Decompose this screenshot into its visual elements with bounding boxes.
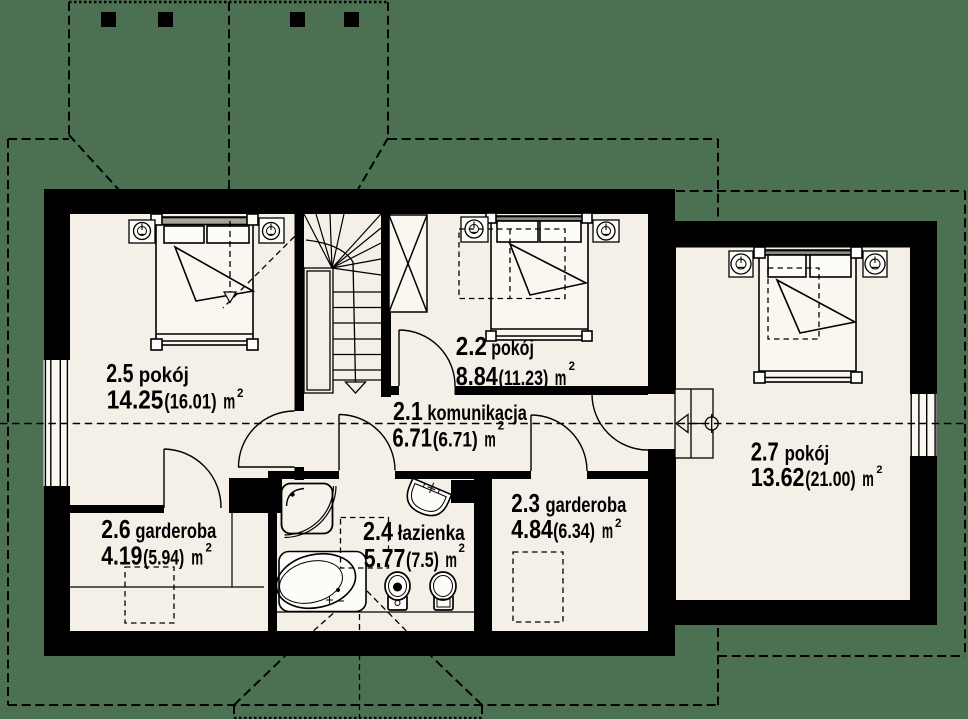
svg-text:pokój: pokój: [491, 337, 534, 360]
svg-text:6.71: 6.71: [392, 423, 432, 453]
svg-text:(21.00): (21.00): [805, 468, 855, 491]
svg-text:2.4: 2.4: [363, 516, 393, 546]
svg-text:m: m: [445, 549, 457, 572]
svg-text:m: m: [223, 391, 235, 414]
svg-text:2.5: 2.5: [106, 358, 133, 388]
svg-text:m: m: [191, 547, 203, 570]
svg-text:garderoba: garderoba: [135, 520, 216, 543]
svg-text:(11.23): (11.23): [499, 367, 549, 390]
svg-text:(16.01): (16.01): [164, 391, 216, 414]
svg-text:4.84: 4.84: [511, 514, 553, 544]
svg-text:5.77: 5.77: [364, 543, 406, 573]
svg-text:garderoba: garderoba: [546, 494, 627, 517]
svg-text:8.84: 8.84: [456, 361, 498, 391]
svg-text:komunikacja: komunikacja: [427, 402, 527, 425]
svg-text:m: m: [602, 520, 613, 543]
svg-text:2: 2: [876, 464, 882, 476]
svg-text:2: 2: [615, 518, 621, 530]
svg-text:2.6: 2.6: [101, 514, 130, 544]
svg-text:2: 2: [206, 543, 212, 555]
svg-text:2.2: 2.2: [456, 331, 487, 361]
svg-text:(7.5): (7.5): [406, 549, 439, 572]
svg-text:2.1: 2.1: [393, 396, 423, 426]
svg-text:2: 2: [498, 421, 504, 433]
svg-text:m: m: [484, 429, 495, 452]
svg-text:(5.94): (5.94): [143, 547, 184, 570]
svg-text:(6.34): (6.34): [553, 520, 595, 543]
svg-text:(6.71): (6.71): [433, 429, 478, 452]
svg-text:m: m: [862, 468, 874, 491]
svg-text:2: 2: [569, 361, 575, 373]
svg-text:2: 2: [459, 543, 465, 555]
svg-text:4.19: 4.19: [101, 541, 142, 571]
svg-text:2: 2: [237, 388, 243, 400]
svg-text:łazienka: łazienka: [398, 522, 465, 545]
svg-text:m: m: [555, 367, 567, 390]
svg-text:14.25: 14.25: [107, 385, 164, 415]
svg-text:13.62: 13.62: [751, 462, 805, 492]
